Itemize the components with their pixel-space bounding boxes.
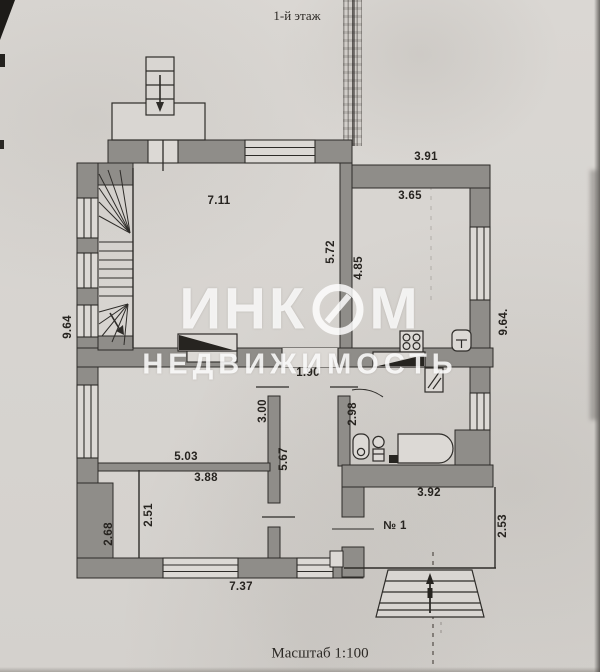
dim-bottom-room-height: 2.51 [143,503,155,527]
scanned-floor-plan-page: 1-й этаж 3.91 3.65 7.11 5.72 4.85 9.64 9… [0,0,600,672]
stove-icon [400,331,423,352]
dim-left-room-height: 3.00 [257,399,269,423]
dim-bottom-width: 7.37 [229,581,253,593]
room-number-label: № 1 [383,520,406,532]
bathroom-fixtures [353,368,453,463]
water-heater-icon [425,368,443,392]
counter-right [373,352,425,367]
dim-right-height: 9.64. [498,308,510,335]
dim-living-width: 7.11 [208,195,231,207]
dim-veranda-height: 2.53 [497,514,509,538]
porch-stairs [146,57,174,115]
counter-left [178,334,237,351]
entry-stairs [376,570,484,617]
stairs-left [99,168,133,348]
sink-icon [452,330,471,351]
dim-hall-height: 5.67 [278,447,290,471]
dim-kitchen-height: 4.85 [353,256,365,280]
dim-bath-height: 2.98 [347,402,359,426]
dim-bottom-room-width: 3.88 [194,472,218,484]
dim-left-bottom-height: 2.68 [103,522,115,546]
dim-top-width: 3.91 [414,151,438,163]
dim-hall-width: 1.90 [296,367,320,379]
page-title: 1-й этаж [273,8,320,24]
dim-left-height: 9.64 [62,315,74,339]
floor-plan-svg [0,0,600,672]
bathtub-icon [389,434,453,463]
dim-living-height: 5.72 [325,240,337,264]
dim-veranda-width: 3.92 [417,487,441,499]
porch [112,57,205,140]
toilet-icon [353,434,369,459]
scale-label: Масштаб 1:100 [271,646,368,663]
washbasin-icon [373,436,384,461]
dim-kitchen-width: 3.65 [398,190,422,202]
dim-left-room-width: 5.03 [174,451,198,463]
